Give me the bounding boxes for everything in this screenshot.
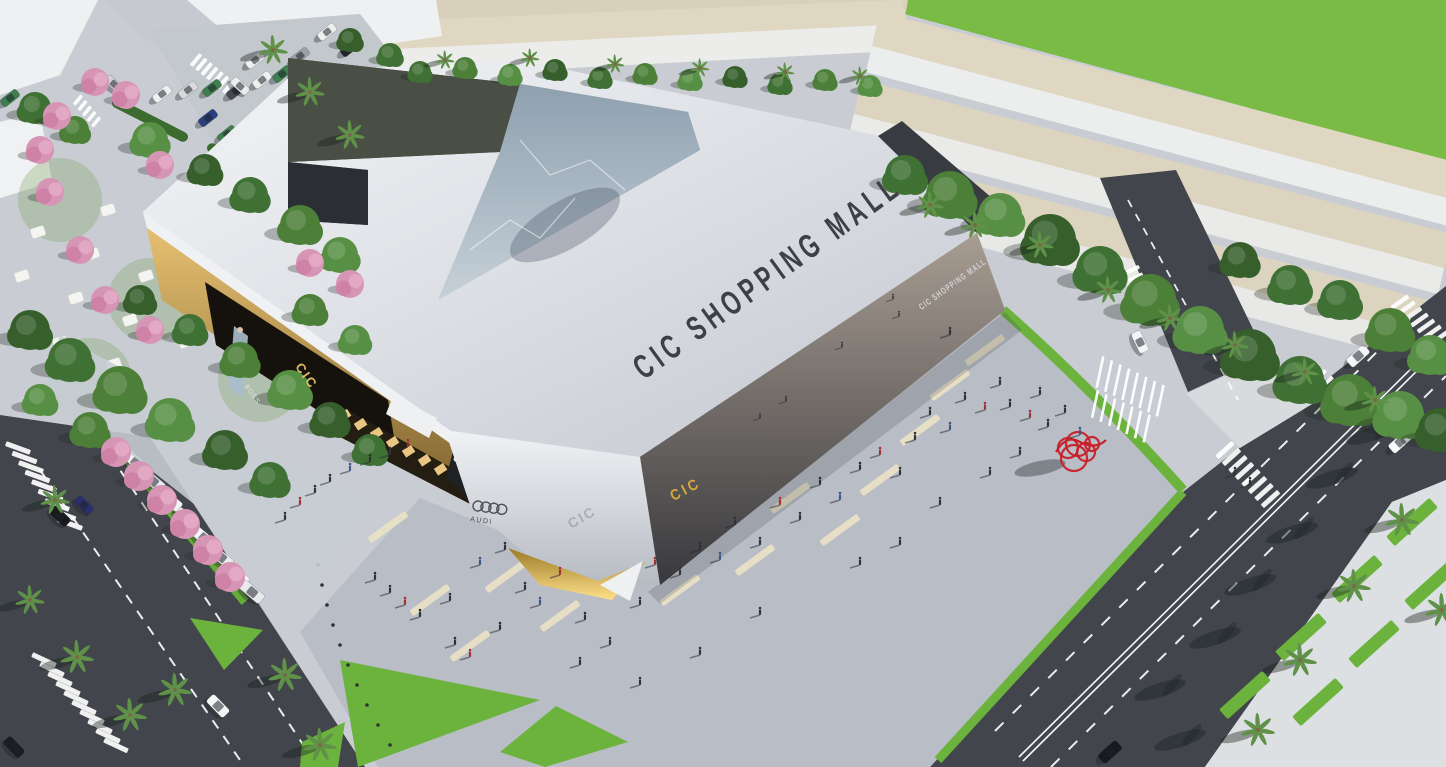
person: [759, 540, 761, 546]
bollard: [320, 583, 324, 587]
person: [389, 450, 391, 456]
person: [1234, 470, 1236, 476]
person: [964, 395, 966, 401]
bollard: [355, 683, 359, 687]
person: [1064, 408, 1066, 414]
person: [699, 545, 701, 551]
person: [524, 585, 526, 591]
person: [899, 540, 901, 546]
person: [949, 330, 951, 336]
person: [1079, 430, 1081, 436]
person: [389, 588, 391, 594]
person: [719, 555, 721, 561]
scene-canvas: AUDI: [0, 0, 1446, 767]
person: [454, 640, 456, 646]
person: [407, 442, 409, 448]
person: [499, 625, 501, 631]
person: [1009, 402, 1011, 408]
bollard: [331, 623, 335, 627]
aerial-render: AUDI CIC SHOPPING MALL CIC SHOPPING MALL…: [0, 0, 1446, 767]
person: [898, 313, 900, 317]
person: [859, 560, 861, 566]
person: [799, 515, 801, 521]
bollard: [346, 663, 350, 667]
person: [999, 380, 1001, 386]
person: [785, 398, 787, 402]
person: [504, 545, 506, 551]
person: [892, 296, 894, 300]
person: [839, 495, 841, 501]
person: [879, 450, 881, 456]
person: [1039, 390, 1041, 396]
person: [349, 466, 351, 472]
person: [284, 515, 286, 521]
person: [1047, 422, 1049, 428]
person: [329, 477, 331, 483]
person: [404, 600, 406, 606]
person: [1249, 480, 1251, 486]
person: [419, 612, 421, 618]
bollard: [376, 723, 380, 727]
person: [859, 465, 861, 471]
person: [949, 425, 951, 431]
person: [654, 560, 656, 566]
person: [314, 488, 316, 494]
person: [584, 615, 586, 621]
person: [939, 500, 941, 506]
person: [759, 610, 761, 616]
person: [679, 570, 681, 576]
person: [609, 640, 611, 646]
person: [639, 680, 641, 686]
person: [759, 415, 761, 419]
person: [779, 500, 781, 506]
person: [899, 470, 901, 476]
person: [539, 600, 541, 606]
person: [469, 652, 471, 658]
person: [841, 344, 843, 348]
person: [914, 435, 916, 441]
person: [639, 600, 641, 606]
person: [1029, 413, 1031, 419]
person: [374, 575, 376, 581]
person: [579, 660, 581, 666]
person: [699, 650, 701, 656]
bollard: [325, 603, 329, 607]
person: [734, 520, 736, 526]
bollard: [365, 703, 369, 707]
person: [929, 410, 931, 416]
bollard: [338, 643, 342, 647]
bollard: [388, 743, 392, 747]
person: [449, 596, 451, 602]
person: [479, 560, 481, 566]
person: [559, 570, 561, 576]
person: [989, 470, 991, 476]
person: [369, 457, 371, 463]
person: [299, 500, 301, 506]
billboard-model-head: [237, 327, 243, 333]
person: [819, 480, 821, 486]
person: [1019, 450, 1021, 456]
person: [984, 405, 986, 411]
